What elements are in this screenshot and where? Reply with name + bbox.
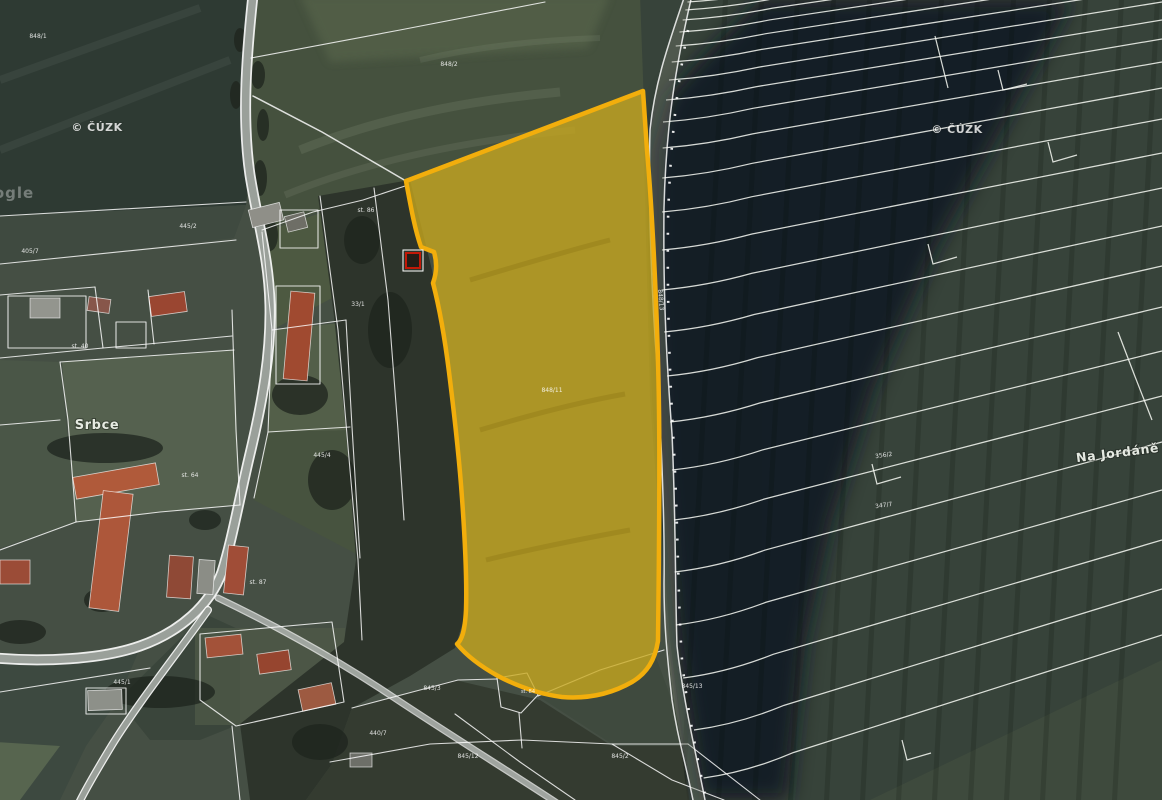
parcel-number-label: 845/13	[681, 683, 702, 690]
parcel-number-label: 848/11	[541, 387, 562, 394]
imagery-watermark: ogle	[0, 184, 34, 202]
parcel-number-label: st. 40	[72, 343, 89, 350]
copyright-watermark: © ČÚZK	[931, 123, 982, 136]
parcel-number-label: 845/12	[457, 753, 478, 760]
parcel-number-label: 440/7	[369, 730, 386, 737]
parcel-number-label: st. 86	[358, 207, 375, 214]
cadastral-map-viewport[interactable]: SrbceNa Jordáně© ČÚZK© ČÚZKogle848/1848/…	[0, 0, 1162, 800]
parcel-number-label: 445/2	[179, 223, 196, 230]
map-canvas[interactable]: SrbceNa Jordáně© ČÚZK© ČÚZKogle848/1848/…	[0, 0, 1162, 800]
parcel-number-label: 445/1	[113, 679, 130, 686]
parcel-number-label: st. 84	[521, 689, 535, 695]
parcel-number-label: 848/2	[440, 61, 457, 68]
copyright-watermark: © ČÚZK	[71, 121, 122, 134]
parcel-number-label: 405/7	[21, 248, 38, 255]
parcel-number-label: 33/1	[351, 301, 365, 308]
parcel-number-label: 845/3	[423, 685, 440, 692]
parcel-number-label: st. 64	[182, 472, 199, 479]
parcel-number-label: 445/4	[313, 452, 330, 459]
parcel-number-label: 845/2	[611, 753, 628, 760]
parcel-number-label: st. 87	[250, 579, 267, 586]
place-name-label: Srbce	[75, 418, 120, 433]
parcel-number-label: 848/1	[29, 33, 46, 40]
red-building-marker[interactable]	[403, 250, 423, 271]
